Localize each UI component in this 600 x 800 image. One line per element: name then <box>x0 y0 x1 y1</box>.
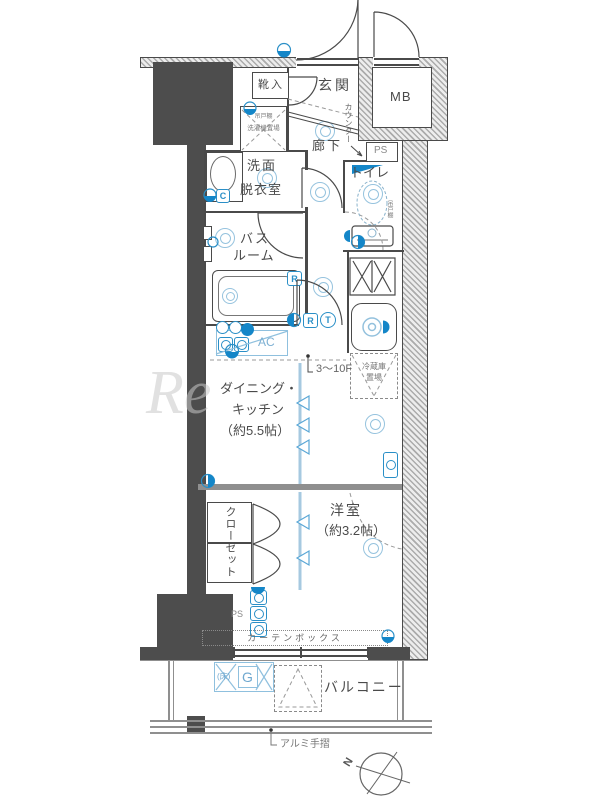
bathroom-label-2: ルーム <box>233 249 275 262</box>
closet-label: クローゼット <box>224 506 235 578</box>
dk-label-1: ダイニング・ <box>220 382 298 395</box>
balcony-edge <box>140 660 428 661</box>
wall-kitchen-left <box>347 252 349 353</box>
toilet-door-arc-dashed <box>345 212 383 250</box>
balcony-window-tick-c <box>300 647 302 658</box>
entrance-label: 玄関 <box>318 78 352 92</box>
light-corridor-bottom <box>313 277 333 297</box>
toilet-tank <box>352 226 393 246</box>
wall-toilet-bottom <box>343 250 404 252</box>
wall-washroom-bath-divider <box>204 211 308 213</box>
compass <box>360 753 402 795</box>
entrance-door-arc <box>296 0 358 60</box>
counter-label: カウンター <box>344 103 352 143</box>
balcony-side-left-a <box>168 660 170 722</box>
shower-control-lower <box>203 246 212 262</box>
corridor-label: 廊下 <box>312 139 342 152</box>
ac-switch-2 <box>234 337 249 352</box>
toilet-label: トイレ <box>350 166 389 179</box>
light-corridor-mid <box>310 182 330 202</box>
mb-threshold-line2 <box>374 64 419 66</box>
stove <box>350 258 395 295</box>
kitchen-sink <box>351 303 397 351</box>
washing-machine-label: 洗濯機置場 <box>240 126 287 133</box>
handrail-line3 <box>150 732 432 734</box>
balcony-wall-left <box>140 647 233 660</box>
mb-threshold-line <box>374 58 419 60</box>
floor-outlet-label: (床) <box>217 673 230 681</box>
fridge-label-2: 置場 <box>350 374 398 382</box>
bedroom-label-1: 洋室 <box>330 503 362 517</box>
compass-needles <box>356 752 410 794</box>
ac-outlet-2 <box>229 321 242 334</box>
fridge-label-1: 冷蔵庫 <box>350 363 398 371</box>
floor-plan: C R R T <box>0 0 600 800</box>
entrance-threshold-line2 <box>297 64 358 66</box>
wall-right <box>402 140 428 660</box>
bathtub-drain <box>222 288 238 304</box>
entrance-threshold-line <box>297 58 358 60</box>
ac-outlet-solid <box>241 323 254 336</box>
balcony-window-tick-r <box>367 647 369 658</box>
wall-toilet-left <box>343 160 345 213</box>
vanity-basin <box>210 156 236 192</box>
handrail-label: アルミ手摺 <box>280 740 330 750</box>
badge-r-bath: R <box>287 271 302 286</box>
ac-switch-1 <box>218 337 233 352</box>
dk-label-3: （約5.5帖） <box>220 424 290 437</box>
light-bathroom <box>215 228 235 248</box>
toilet-cistern <box>363 184 383 204</box>
washer-shelf-label: 吊戸棚 <box>240 114 287 120</box>
counter-arrow <box>351 146 362 156</box>
g-outlet-label: G <box>242 670 253 684</box>
ps-top-label: PS <box>374 146 387 156</box>
handrail-line1 <box>150 720 432 722</box>
meter-box-label: MB <box>390 90 412 103</box>
floors-leader <box>308 357 313 372</box>
ps-fixture-1 <box>250 590 267 605</box>
curtain-box-label: カーテンボックス <box>202 634 388 643</box>
wall-washbath-right-lower <box>305 207 308 326</box>
compass-n-label: N <box>342 756 356 769</box>
dk-label-2: キッチン <box>232 403 284 416</box>
badge-c: C <box>216 189 230 203</box>
washroom-label-1: 洗面 <box>247 159 277 172</box>
badge-r-dk: R <box>303 313 318 328</box>
wall-toilet-top <box>343 160 368 162</box>
ps-fixture-2 <box>250 606 267 621</box>
wall-fixture-bedroom <box>383 452 398 478</box>
floors-label: 3〜10F <box>316 364 352 375</box>
handrail-line2 <box>150 726 432 728</box>
balcony-label: バルコニー <box>324 680 404 694</box>
partition-dk-bedroom <box>198 484 402 490</box>
balcony-side-left-b <box>173 660 174 722</box>
bathroom-label-1: バス <box>240 232 270 245</box>
evacuation-hatch <box>274 665 322 712</box>
light-bedroom <box>363 538 383 558</box>
ps-bottom-label: PS <box>231 610 243 619</box>
ac-outlet-1 <box>216 321 229 334</box>
shower-control-upper <box>203 226 212 240</box>
washroom-label-2: 脱衣室 <box>240 183 282 196</box>
mb-door-arc <box>374 12 419 57</box>
pillar-top-left <box>153 62 233 145</box>
light-dk <box>365 414 385 434</box>
shoebox-door-arc <box>289 77 317 105</box>
balcony-wall-right <box>368 647 410 660</box>
toilet-shelf-label: 吊戸棚 <box>386 200 392 218</box>
badge-t-dk: T <box>320 312 336 328</box>
closet-doors <box>253 504 280 584</box>
balcony-window-tick-l <box>233 647 235 658</box>
shoe-box-label: 靴入 <box>258 80 284 91</box>
ac-label: AC <box>258 336 275 348</box>
wall-washbath-right-upper <box>305 150 308 170</box>
bedroom-label-2: （約3.2帖） <box>316 524 386 537</box>
